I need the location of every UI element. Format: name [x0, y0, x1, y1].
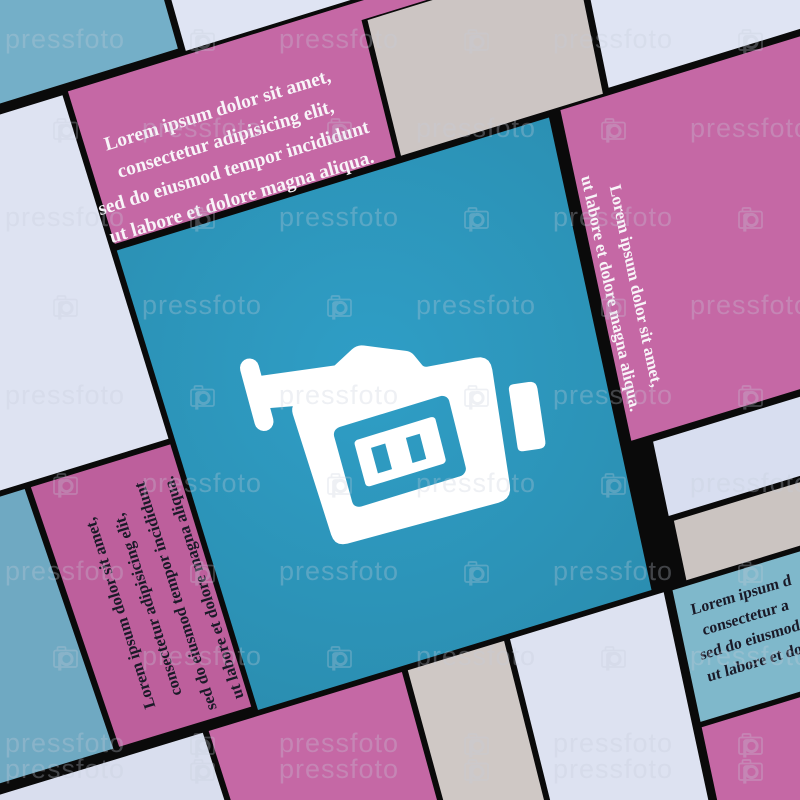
svg-text:pressfoto: pressfoto [142, 290, 262, 320]
svg-text:pressfoto: pressfoto [5, 380, 125, 410]
svg-text:pressfoto: pressfoto [5, 556, 125, 586]
svg-text:pressfoto: pressfoto [416, 290, 536, 320]
svg-text:pressfoto: pressfoto [416, 113, 536, 143]
svg-text:pressfoto: pressfoto [142, 113, 262, 143]
svg-text:pressfoto: pressfoto [416, 641, 536, 671]
svg-text:pressfoto: pressfoto [553, 24, 673, 54]
svg-text:pressfoto: pressfoto [690, 641, 800, 671]
svg-text:pressfoto: pressfoto [279, 556, 399, 586]
svg-text:pressfoto: pressfoto [553, 380, 673, 410]
svg-text:pressfoto: pressfoto [690, 113, 800, 143]
svg-text:pressfoto: pressfoto [279, 24, 399, 54]
svg-text:pressfoto: pressfoto [279, 380, 399, 410]
svg-text:pressfoto: pressfoto [690, 468, 800, 498]
svg-text:pressfoto: pressfoto [279, 202, 399, 232]
svg-text:pressfoto: pressfoto [553, 754, 673, 784]
svg-text:pressfoto: pressfoto [690, 290, 800, 320]
svg-text:pressfoto: pressfoto [5, 24, 125, 54]
svg-text:pressfoto: pressfoto [142, 468, 262, 498]
svg-text:pressfoto: pressfoto [553, 202, 673, 232]
svg-text:pressfoto: pressfoto [416, 468, 536, 498]
svg-text:pressfoto: pressfoto [5, 202, 125, 232]
svg-text:pressfoto: pressfoto [279, 754, 399, 784]
svg-text:pressfoto: pressfoto [5, 754, 125, 784]
svg-text:pressfoto: pressfoto [142, 641, 262, 671]
svg-text:pressfoto: pressfoto [553, 556, 673, 586]
